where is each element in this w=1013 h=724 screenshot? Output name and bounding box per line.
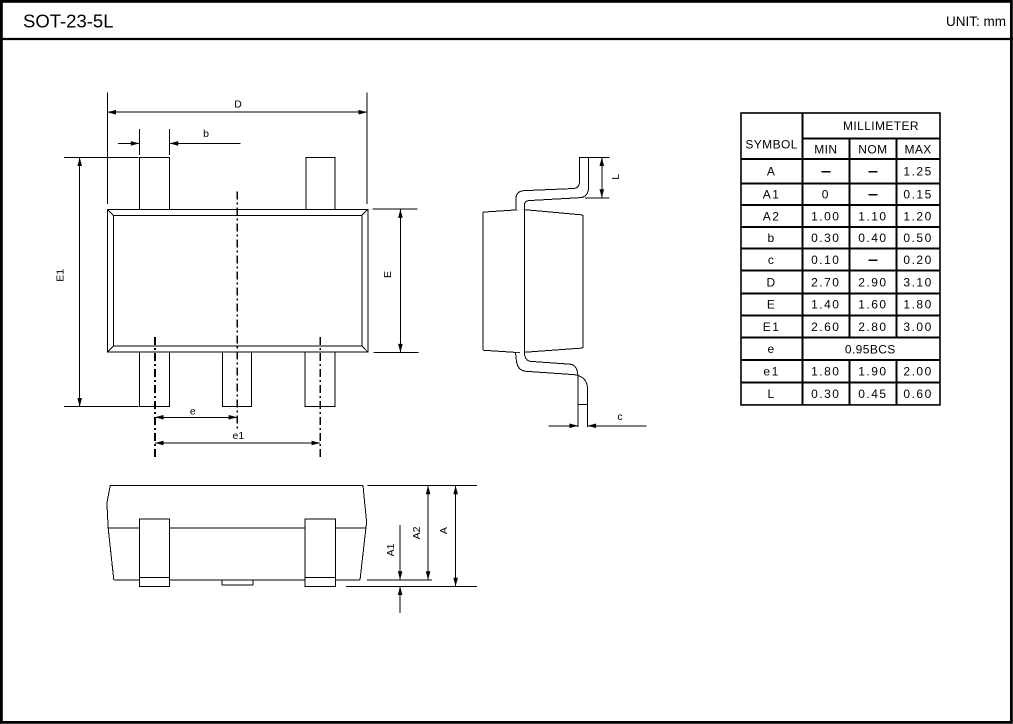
svg-text:1.80: 1.80 [903, 298, 932, 312]
svg-text:0.45: 0.45 [858, 387, 887, 401]
svg-text:e: e [190, 405, 196, 417]
svg-text:0.15: 0.15 [903, 188, 932, 202]
svg-text:E: E [767, 298, 777, 312]
svg-text:1.10: 1.10 [858, 209, 887, 223]
svg-text:UNIT: mm: UNIT: mm [946, 14, 1006, 29]
svg-text:0.20: 0.20 [903, 253, 932, 267]
svg-text:D: D [234, 99, 242, 111]
svg-text:L: L [768, 387, 776, 401]
svg-text:0.95BCS: 0.95BCS [845, 343, 896, 357]
svg-text:1.90: 1.90 [858, 365, 887, 379]
svg-text:2.00: 2.00 [903, 365, 932, 379]
svg-text:2.90: 2.90 [858, 275, 887, 289]
svg-text:D: D [767, 275, 777, 289]
svg-text:1.00: 1.00 [811, 209, 840, 223]
svg-text:1.60: 1.60 [858, 298, 887, 312]
svg-text:1.25: 1.25 [903, 165, 932, 179]
svg-text:NOM: NOM [858, 142, 887, 156]
svg-text:b: b [203, 128, 209, 140]
svg-text:3.00: 3.00 [903, 320, 932, 334]
svg-text:E: E [382, 271, 394, 278]
svg-text:1.40: 1.40 [811, 298, 840, 312]
svg-text:E1: E1 [54, 269, 66, 282]
svg-text:3.10: 3.10 [903, 275, 932, 289]
svg-text:b: b [768, 231, 776, 245]
svg-text:2.70: 2.70 [811, 275, 840, 289]
svg-text:A: A [438, 527, 450, 534]
svg-text:e1: e1 [233, 430, 245, 442]
svg-text:MAX: MAX [904, 142, 931, 156]
svg-text:c: c [768, 253, 776, 267]
svg-text:2.60: 2.60 [811, 320, 840, 334]
svg-text:MIN: MIN [814, 142, 837, 156]
svg-text:E1: E1 [763, 320, 781, 334]
svg-text:2.80: 2.80 [858, 320, 887, 334]
svg-text:A2: A2 [411, 526, 423, 539]
svg-text:MILLIMETER: MILLIMETER [843, 119, 919, 133]
svg-text:0.40: 0.40 [858, 231, 887, 245]
svg-text:A2: A2 [763, 209, 781, 223]
svg-text:0.10: 0.10 [811, 253, 840, 267]
svg-text:L: L [610, 174, 622, 180]
svg-text:c: c [617, 411, 622, 423]
svg-text:A1: A1 [385, 543, 397, 556]
svg-text:0.60: 0.60 [903, 387, 932, 401]
svg-text:A1: A1 [763, 188, 781, 202]
svg-text:A: A [767, 165, 777, 179]
svg-text:1.20: 1.20 [903, 209, 932, 223]
svg-text:e: e [768, 342, 776, 356]
svg-text:0.30: 0.30 [811, 231, 840, 245]
svg-text:SYMBOL: SYMBOL [745, 138, 797, 152]
svg-text:SOT-23-5L: SOT-23-5L [23, 11, 114, 32]
svg-text:0: 0 [822, 188, 830, 202]
svg-text:e1: e1 [763, 365, 779, 379]
svg-text:0.30: 0.30 [811, 387, 840, 401]
svg-text:1.80: 1.80 [811, 365, 840, 379]
svg-text:0.50: 0.50 [903, 231, 932, 245]
